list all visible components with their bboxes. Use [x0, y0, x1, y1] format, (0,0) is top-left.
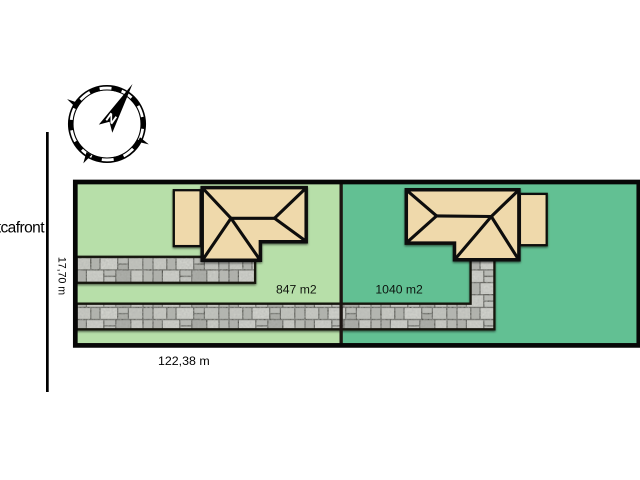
svg-text:1040 m2: 1040 m2: [375, 282, 423, 296]
svg-text:122,38 m: 122,38 m: [158, 354, 210, 368]
svg-text:17,70 m: 17,70 m: [56, 257, 68, 295]
svg-text:tcafront: tcafront: [0, 220, 45, 237]
svg-text:847 m2: 847 m2: [276, 282, 317, 296]
